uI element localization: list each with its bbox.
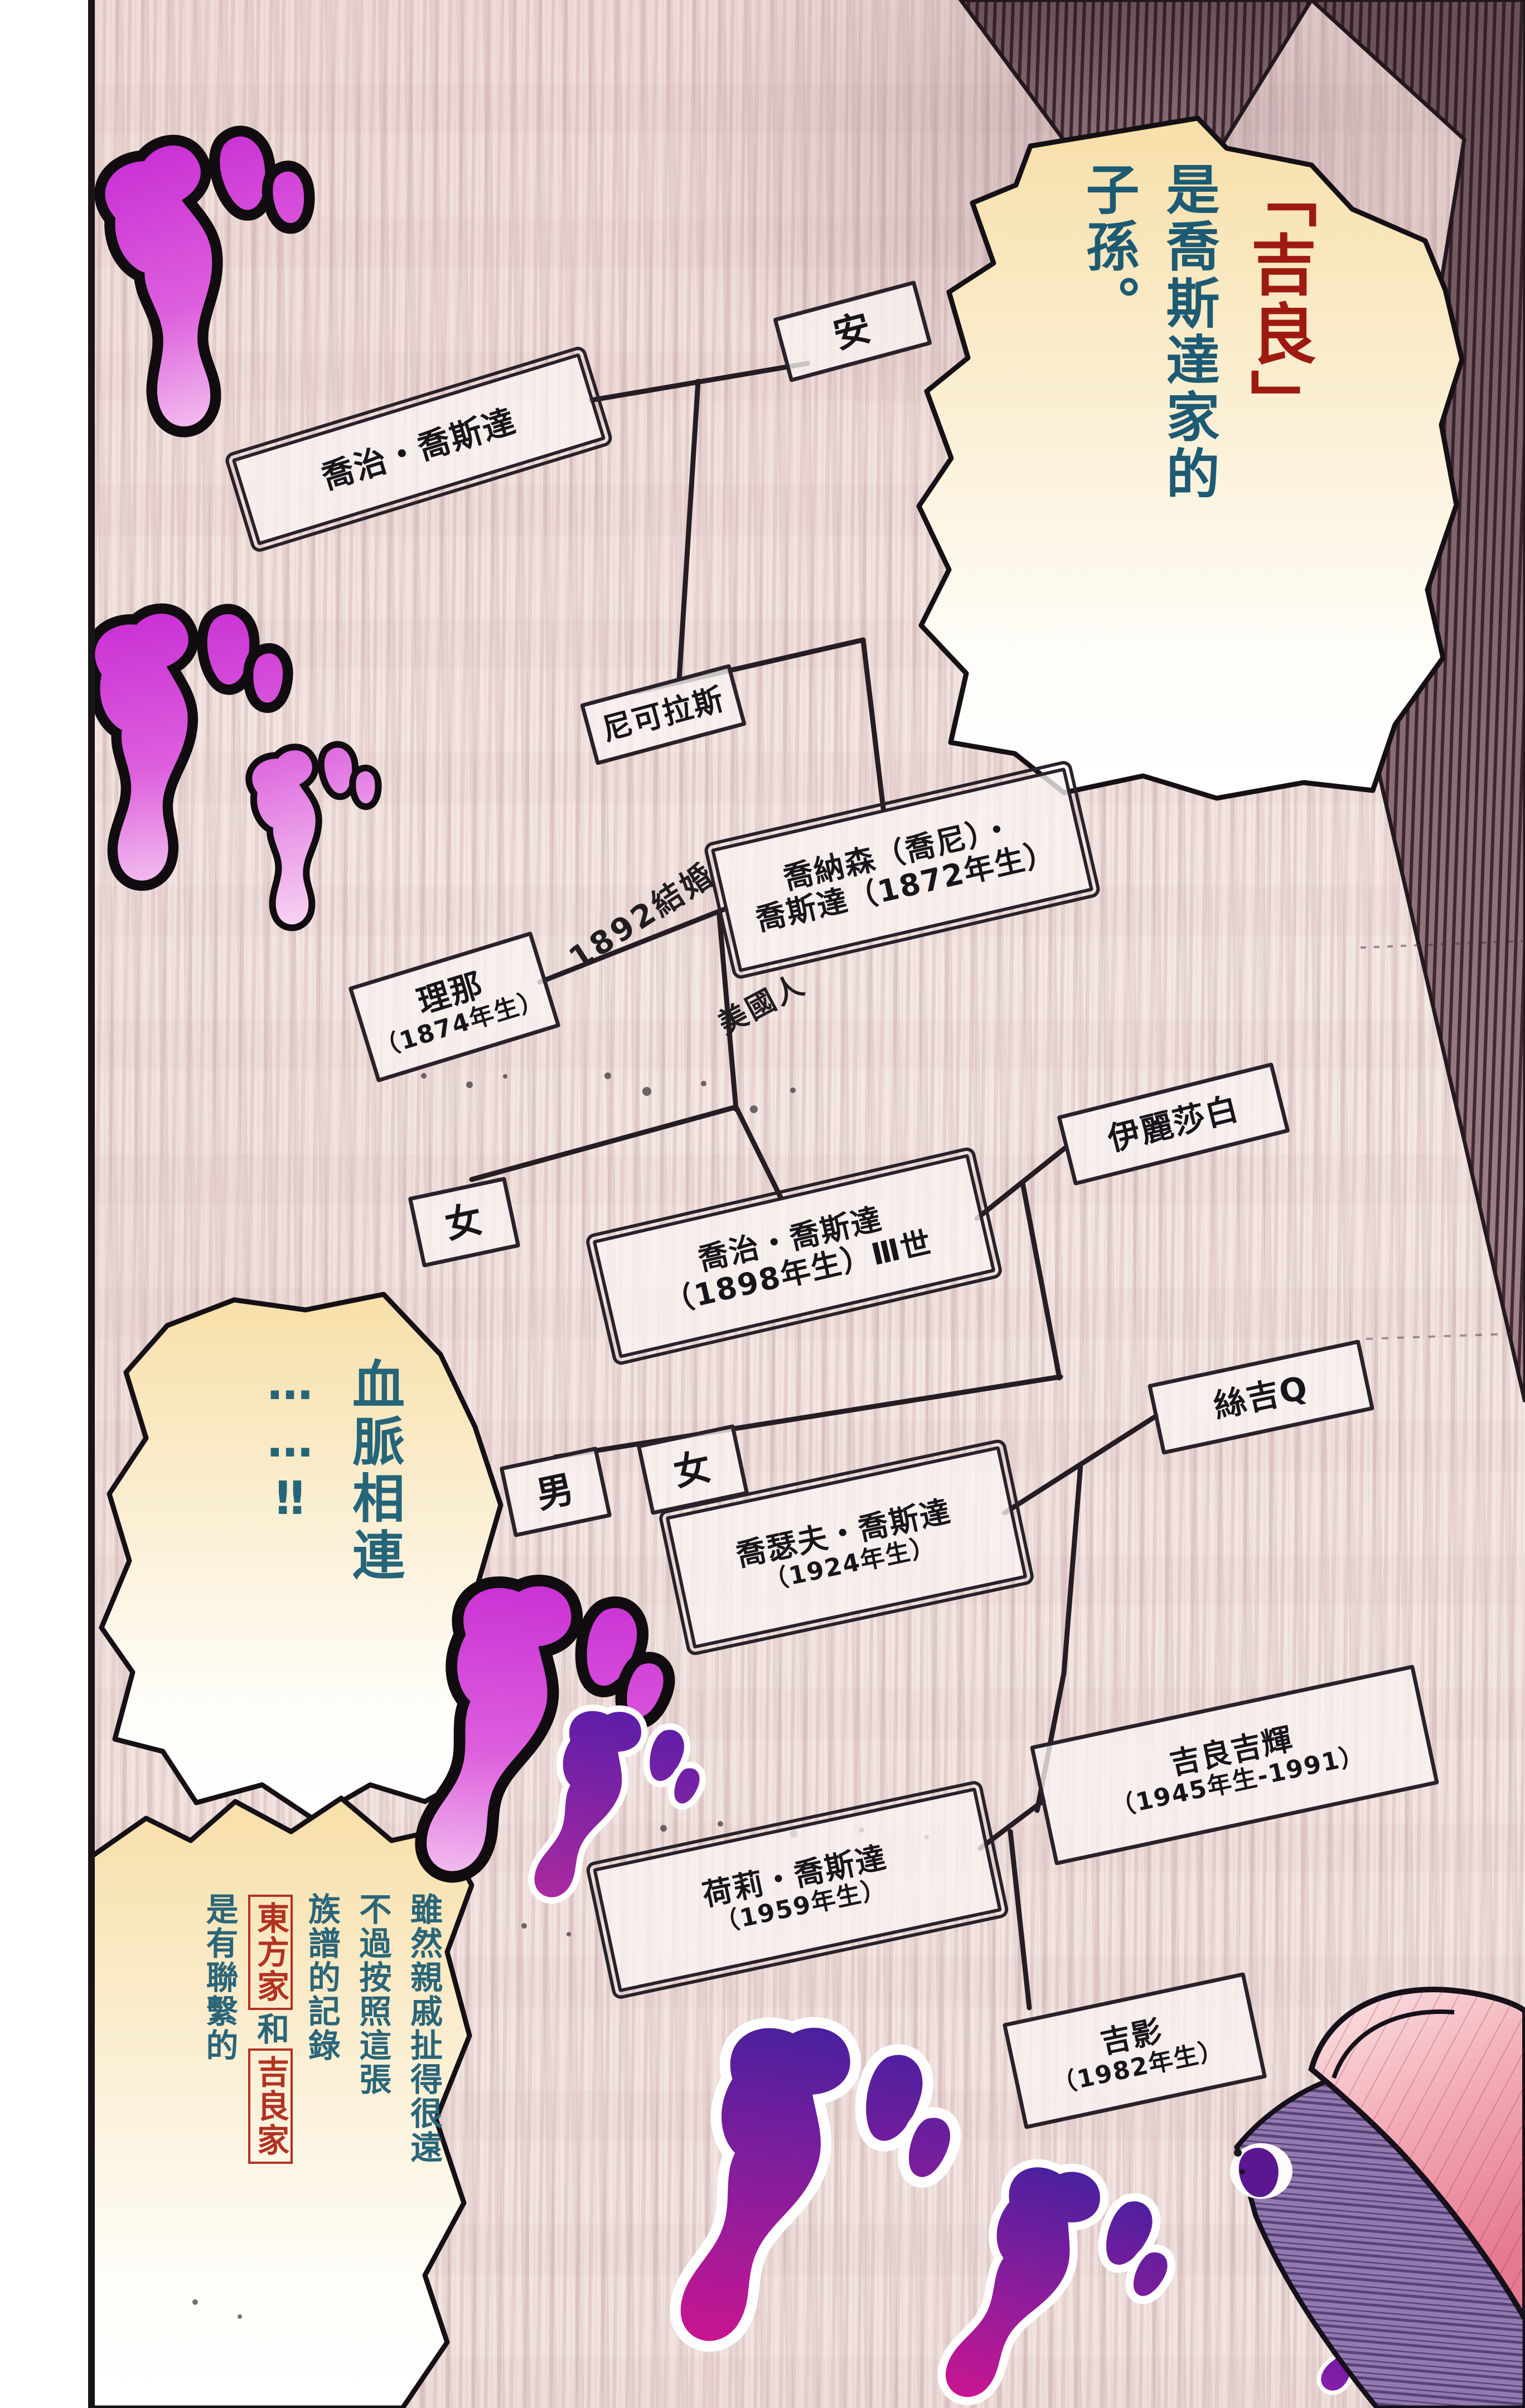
manga-page: 「吉良」 是喬斯達家的 子孫。 血脈相連 ……‼ 雖然親戚扯得很遠 不過按照這張… xyxy=(0,0,1525,2408)
ink-dot xyxy=(1234,2149,1242,2157)
hat-object-layer xyxy=(0,0,1525,2408)
ink-dot xyxy=(1240,2169,1245,2174)
page-margin xyxy=(0,0,88,2408)
panel-border xyxy=(88,0,95,2408)
